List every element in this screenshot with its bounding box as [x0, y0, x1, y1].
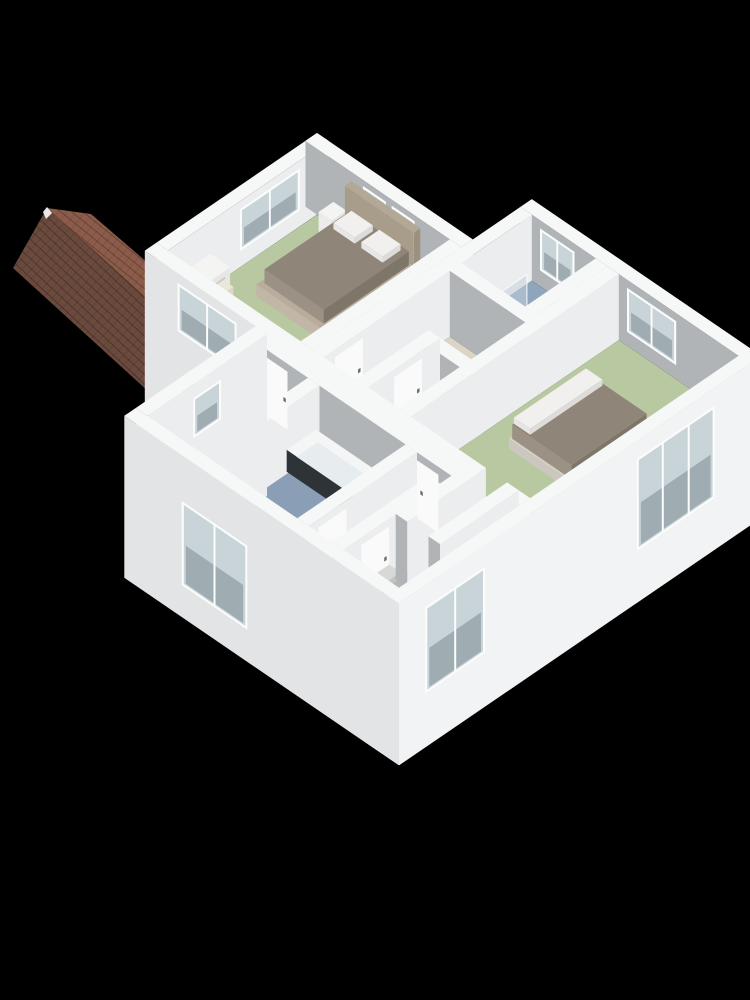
floorplan-canvas	[0, 0, 750, 1000]
wall-se-exterior-face-sw	[388, 596, 400, 766]
window-bedroom-right-se-mullion	[662, 443, 664, 532]
window-bedroom-nw-mullion	[269, 190, 271, 229]
window-shower-room-mullion	[556, 241, 558, 280]
window-sw-mullion	[214, 525, 216, 606]
window-bedroom-sw-mullion	[206, 305, 208, 350]
window-bedroom-right-ne-mullion	[651, 306, 653, 347]
window-bedroom-bottom-se-mullion	[454, 588, 456, 671]
stairwell-wall-w-face-sw	[396, 514, 408, 588]
window-bedroom-right-se-mullion	[688, 425, 690, 514]
floor-plan-3d-view	[0, 0, 750, 1000]
